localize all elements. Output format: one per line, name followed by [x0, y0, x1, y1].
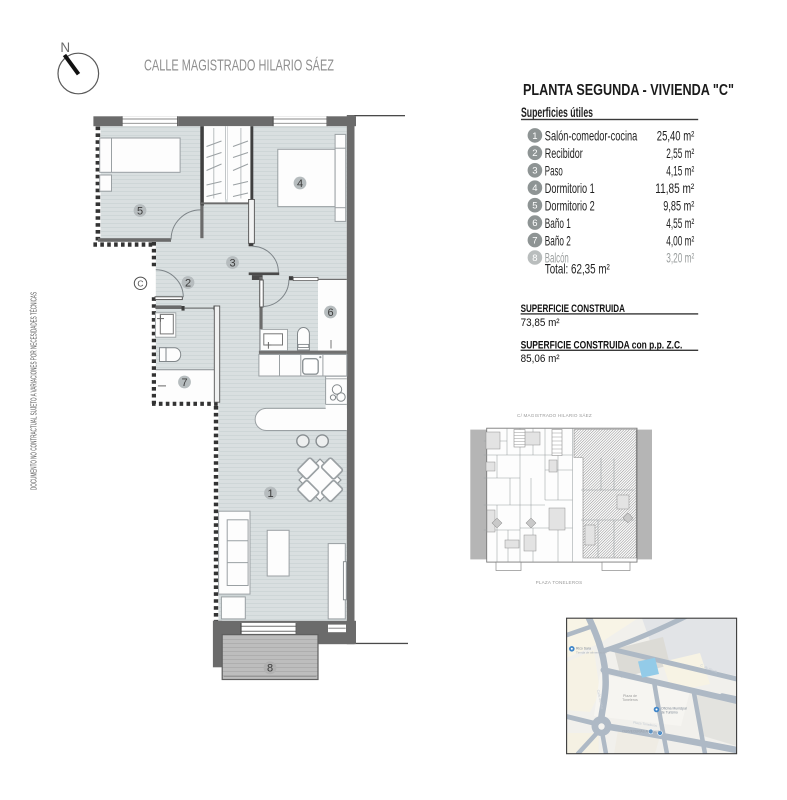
svg-text:de Turismo: de Turismo	[661, 710, 678, 714]
svg-text:4: 4	[532, 183, 537, 194]
svg-text:Tienda de alimentación: Tienda de alimentación	[576, 650, 607, 654]
svg-text:5: 5	[532, 201, 537, 212]
svg-text:C: C	[137, 279, 143, 289]
svg-text:DOCUMENTO NO CONTRACTUAL SUJET: DOCUMENTO NO CONTRACTUAL SUJETO A VARIAC…	[30, 292, 39, 490]
svg-text:3: 3	[229, 257, 235, 269]
svg-text:3,20 m²: 3,20 m²	[666, 250, 694, 266]
svg-text:25,40 m²: 25,40 m²	[657, 128, 695, 144]
svg-text:PLAZA TONELEROS: PLAZA TONELEROS	[536, 580, 583, 585]
svg-text:6: 6	[532, 218, 537, 229]
svg-text:PLANTA SEGUNDA - VIVIENDA "C": PLANTA SEGUNDA - VIVIENDA "C"	[523, 82, 734, 99]
svg-text:Dormitorio 2: Dormitorio 2	[545, 197, 595, 213]
svg-text:Dormitorio 1: Dormitorio 1	[545, 180, 595, 196]
svg-text:73,85 m²: 73,85 m²	[521, 317, 560, 329]
svg-text:5: 5	[137, 205, 143, 217]
svg-text:Toneleros: Toneleros	[622, 698, 638, 702]
svg-text:2: 2	[185, 277, 191, 289]
svg-text:4: 4	[297, 178, 303, 190]
svg-text:Paso: Paso	[545, 163, 563, 179]
svg-text:Baño 2: Baño 2	[545, 232, 571, 248]
svg-text:Salón-comedor-cocina: Salón-comedor-cocina	[545, 128, 638, 144]
svg-text:Recibidor: Recibidor	[545, 145, 583, 161]
svg-text:Baño 1: Baño 1	[545, 215, 571, 231]
svg-text:1: 1	[267, 488, 273, 500]
svg-text:Superficies útiles: Superficies útiles	[521, 104, 593, 120]
svg-text:7: 7	[181, 377, 187, 389]
svg-text:4,55 m²: 4,55 m²	[666, 215, 694, 231]
svg-text:2: 2	[532, 148, 537, 159]
svg-text:4,15 m²: 4,15 m²	[666, 163, 694, 179]
svg-text:7: 7	[532, 236, 537, 247]
svg-text:Total: 62,35 m²: Total: 62,35 m²	[545, 260, 610, 276]
svg-text:3: 3	[532, 166, 537, 177]
svg-text:1: 1	[532, 131, 537, 142]
svg-text:85,06 m²: 85,06 m²	[521, 353, 560, 365]
svg-text:2,55 m²: 2,55 m²	[666, 145, 694, 161]
svg-text:6: 6	[327, 307, 333, 319]
svg-text:4,00 m²: 4,00 m²	[666, 232, 694, 248]
svg-text:CERVECERIAS Almacenés: CERVECERIAS Almacenés	[622, 730, 662, 734]
svg-text:9,85 m²: 9,85 m²	[663, 197, 694, 213]
svg-text:8: 8	[267, 663, 273, 675]
svg-text:11,85 m²: 11,85 m²	[655, 180, 694, 196]
svg-text:C/ MAGISTRADO HILARIO SÁEZ: C/ MAGISTRADO HILARIO SÁEZ	[517, 412, 592, 418]
svg-text:CALLE MAGISTRADO HILARIO SÁEZ: CALLE MAGISTRADO HILARIO SÁEZ	[144, 56, 334, 75]
svg-text:8: 8	[532, 253, 537, 264]
svg-text:N: N	[60, 40, 70, 55]
